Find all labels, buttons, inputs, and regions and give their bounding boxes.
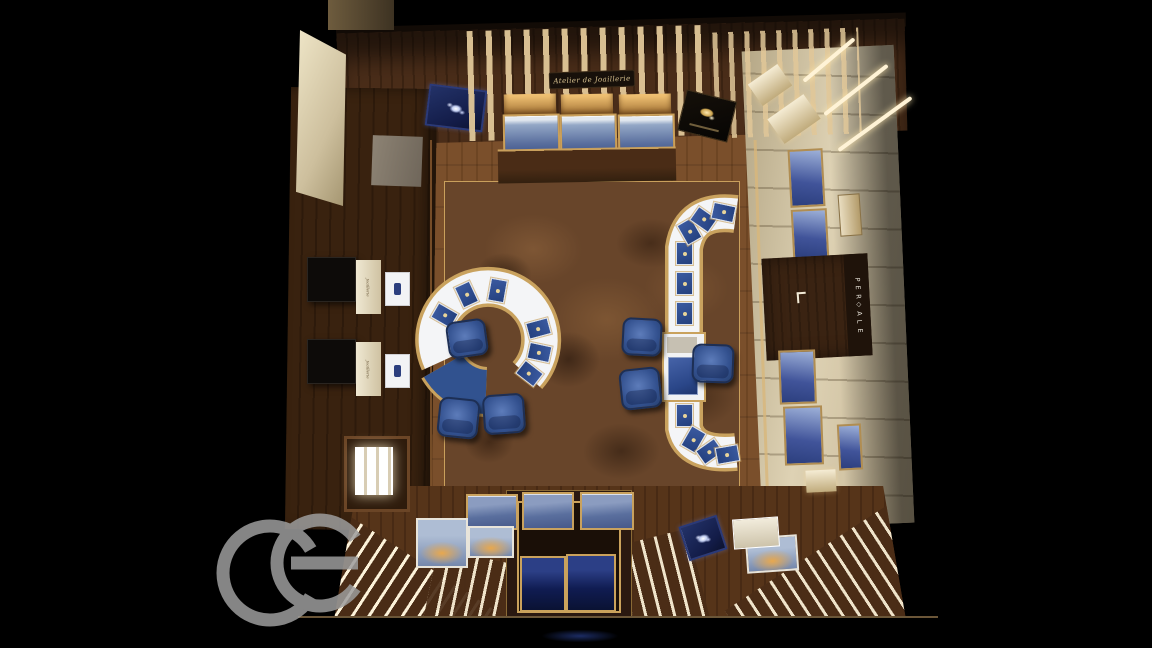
- left-counter-blue-wedge: [443, 366, 486, 392]
- client-chair: [621, 317, 663, 357]
- navy-entry-case: [520, 556, 566, 612]
- entry-display-case: [466, 494, 518, 530]
- client-chair: [436, 396, 481, 440]
- lit-glass-case: [416, 518, 468, 568]
- navy-entry-case: [566, 554, 616, 612]
- jewel-pad: [676, 242, 693, 265]
- boutique-render-scene: Atelier de Joaillerie P E R ◇ A L E Joai…: [0, 0, 1152, 648]
- jewel-pad: [676, 302, 693, 325]
- entrance-glow: [532, 628, 628, 644]
- client-chair: [482, 393, 527, 436]
- white-display-box: [732, 516, 780, 549]
- client-chair: [691, 343, 734, 383]
- lit-glass-case: [468, 526, 514, 558]
- jewel-pad: [676, 404, 693, 427]
- entry-display-case: [522, 492, 574, 530]
- ce-watermark-logo: [205, 490, 375, 648]
- jewel-pad: [676, 272, 693, 295]
- entry-display-case: [580, 492, 634, 530]
- client-chair: [445, 317, 490, 359]
- client-chair: [618, 366, 663, 411]
